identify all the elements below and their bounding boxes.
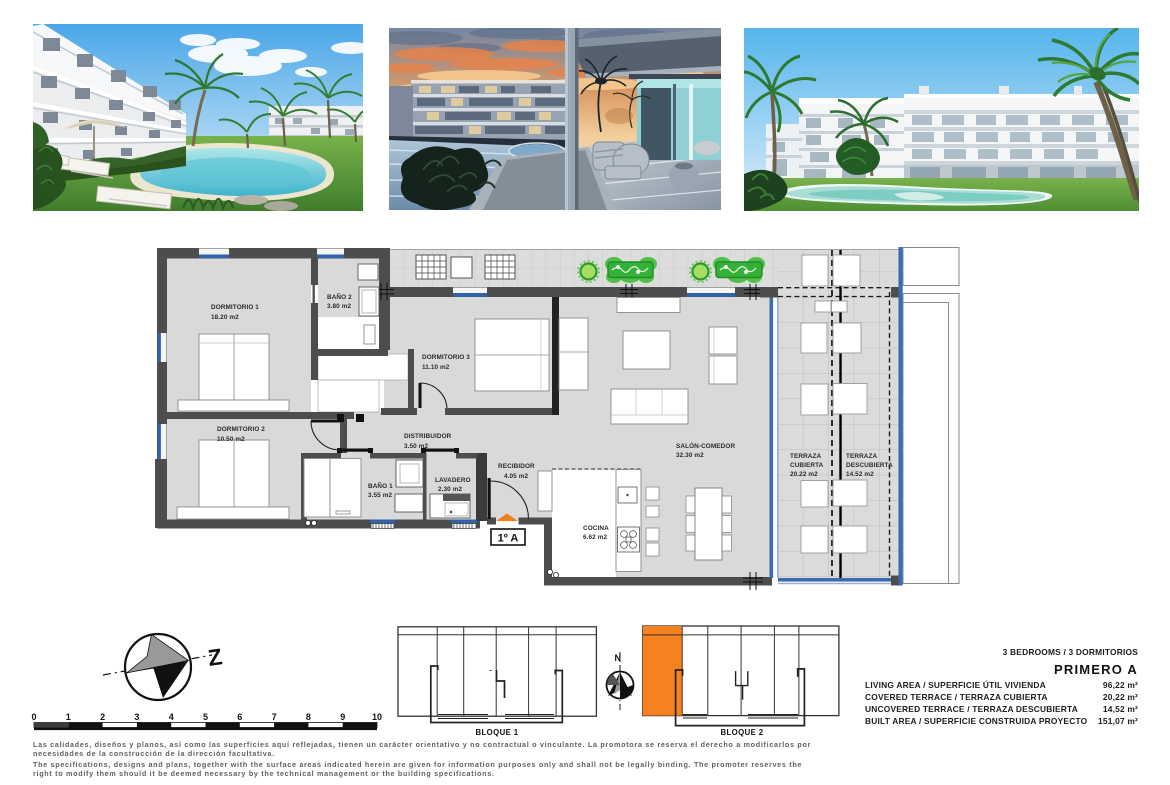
svg-text:32.30 m2: 32.30 m2 (676, 452, 704, 459)
svg-text:96,22 m²: 96,22 m² (1103, 680, 1138, 690)
svg-text:LAVADERO: LAVADERO (435, 477, 471, 484)
svg-text:0: 0 (31, 712, 36, 722)
svg-text:BAÑO 2: BAÑO 2 (327, 292, 352, 301)
svg-text:8: 8 (306, 712, 311, 722)
svg-text:COVERED TERRACE / TERRAZA CUBI: COVERED TERRACE / TERRAZA CUBIERTA (865, 692, 1048, 702)
svg-text:3.80 m2: 3.80 m2 (327, 303, 351, 310)
svg-text:DESCUBIERTA: DESCUBIERTA (846, 462, 893, 469)
svg-text:11.10 m2: 11.10 m2 (422, 364, 450, 371)
svg-text:TERRAZA: TERRAZA (790, 453, 822, 460)
svg-text:Las calidades, diseños y plano: Las calidades, diseños y planos, así com… (33, 740, 811, 749)
svg-text:BUILT AREA / SUPERFICIE CONSTR: BUILT AREA / SUPERFICIE CONSTRUIDA PROYE… (865, 716, 1088, 726)
svg-text:1º A: 1º A (498, 533, 519, 545)
svg-text:BLOQUE 2: BLOQUE 2 (720, 728, 763, 737)
svg-text:3 BEDROOMS / 3 DORMITORIOS: 3 BEDROOMS / 3 DORMITORIOS (1003, 647, 1139, 657)
svg-text:PRIMERO A: PRIMERO A (1054, 662, 1138, 677)
svg-text:4.05 m2: 4.05 m2 (504, 473, 528, 480)
svg-text:3.55 m2: 3.55 m2 (368, 492, 392, 499)
svg-text:RECIBIDOR: RECIBIDOR (498, 463, 535, 470)
svg-text:2.30 m2: 2.30 m2 (438, 486, 462, 493)
svg-text:2: 2 (100, 712, 105, 722)
svg-text:5: 5 (203, 712, 208, 722)
svg-text:6: 6 (237, 712, 242, 722)
svg-text:right to modify them should it: right to modify them should it be deemed… (33, 769, 495, 778)
svg-text:20,22 m²: 20,22 m² (1103, 692, 1138, 702)
svg-text:CUBIERTA: CUBIERTA (790, 462, 824, 469)
svg-text:DORMITORIO 3: DORMITORIO 3 (422, 354, 470, 361)
svg-text:SALÓN-COMEDOR: SALÓN-COMEDOR (676, 441, 735, 450)
svg-text:4: 4 (169, 712, 174, 722)
svg-text:BAÑO 1: BAÑO 1 (368, 481, 393, 490)
svg-text:The specifications, designs an: The specifications, designs and plans, t… (33, 760, 802, 769)
svg-text:10: 10 (372, 712, 382, 722)
svg-text:1: 1 (66, 712, 71, 722)
svg-text:6.62 m2: 6.62 m2 (583, 534, 607, 541)
svg-text:TERRAZA: TERRAZA (846, 453, 878, 460)
svg-text:14,52 m²: 14,52 m² (1103, 704, 1138, 714)
svg-text:3: 3 (134, 712, 139, 722)
svg-text:9: 9 (340, 712, 345, 722)
svg-text:DISTRIBUIDOR: DISTRIBUIDOR (404, 433, 452, 440)
svg-text:N: N (615, 653, 622, 663)
svg-text:DORMITORIO 2: DORMITORIO 2 (217, 426, 265, 433)
svg-text:BLOQUE 1: BLOQUE 1 (475, 728, 518, 737)
svg-text:UNCOVERED TERRACE / TERRAZA DE: UNCOVERED TERRACE / TERRAZA DESCUBIERTA (865, 704, 1078, 714)
svg-text:20.22 m2: 20.22 m2 (790, 471, 818, 478)
svg-text:LIVING AREA / SUPERFICIE ÚTIL: LIVING AREA / SUPERFICIE ÚTIL VIVIENDA (865, 679, 1046, 690)
svg-text:necesidades de la construcción: necesidades de la construcción de la dir… (33, 749, 275, 758)
svg-text:18.20 m2: 18.20 m2 (211, 314, 239, 321)
svg-text:7: 7 (272, 712, 277, 722)
svg-text:3.50 m2: 3.50 m2 (404, 443, 428, 450)
svg-text:COCINA: COCINA (583, 525, 609, 532)
svg-text:14.52 m2: 14.52 m2 (846, 471, 874, 478)
svg-text:DORMITORIO 1: DORMITORIO 1 (211, 304, 259, 311)
svg-text:151,07 m²: 151,07 m² (1098, 716, 1138, 726)
svg-text:10.50 m2: 10.50 m2 (217, 436, 245, 443)
